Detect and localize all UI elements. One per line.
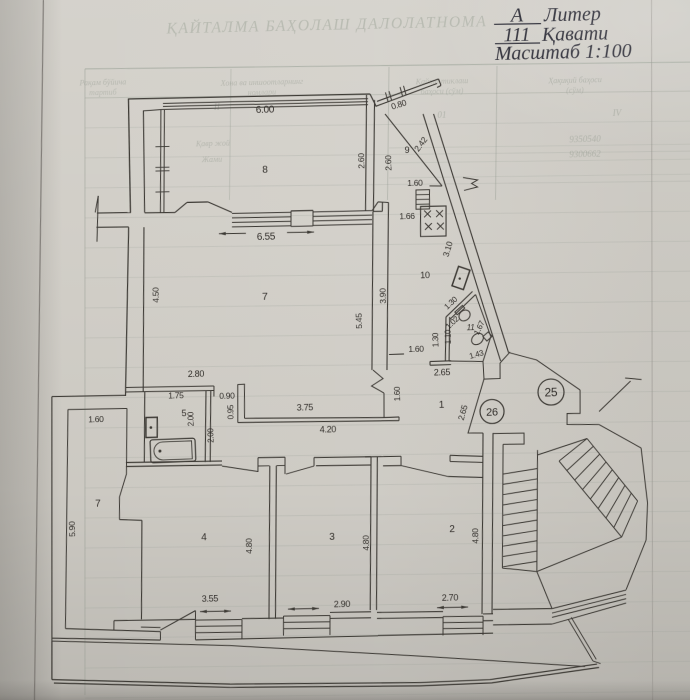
svg-text:тартиб: тартиб bbox=[89, 88, 118, 98]
svg-text:Қавр жой: Қавр жой bbox=[195, 139, 230, 149]
svg-text:2.00: 2.00 bbox=[186, 411, 195, 426]
svg-text:4.80: 4.80 bbox=[244, 538, 254, 554]
svg-text:1.43: 1.43 bbox=[468, 348, 485, 361]
svg-text:25: 25 bbox=[544, 385, 558, 399]
svg-text:3.10: 3.10 bbox=[441, 240, 455, 258]
svg-text:Рақам бўйича: Рақам бўйича bbox=[78, 77, 126, 87]
svg-text:4.20: 4.20 bbox=[320, 424, 337, 434]
svg-text:7: 7 bbox=[262, 291, 268, 303]
svg-text:0.80: 0.80 bbox=[390, 97, 408, 111]
svg-text:2.60: 2.60 bbox=[383, 155, 393, 171]
svg-text:Жами: Жами bbox=[201, 155, 223, 164]
svg-text:6.00: 6.00 bbox=[256, 105, 275, 116]
svg-text:0.95: 0.95 bbox=[226, 404, 235, 419]
svg-text:3.75: 3.75 bbox=[297, 402, 314, 412]
svg-text:2.70: 2.70 bbox=[442, 592, 459, 602]
svg-text:2.00: 2.00 bbox=[206, 427, 215, 442]
svg-text:4.80: 4.80 bbox=[361, 535, 371, 551]
svg-text:0.90: 0.90 bbox=[219, 390, 235, 400]
svg-text:9300662: 9300662 bbox=[569, 149, 601, 160]
svg-text:1.60: 1.60 bbox=[407, 178, 423, 188]
svg-text:9: 9 bbox=[405, 145, 410, 155]
svg-text:8: 8 bbox=[262, 165, 268, 176]
svg-text:2.65: 2.65 bbox=[434, 367, 451, 377]
svg-text:2: 2 bbox=[449, 524, 455, 535]
svg-text:1.60: 1.60 bbox=[393, 386, 402, 401]
svg-text:1.30: 1.30 bbox=[442, 294, 459, 311]
svg-text:3.90: 3.90 bbox=[378, 288, 388, 304]
svg-text:2.90: 2.90 bbox=[334, 599, 351, 609]
svg-text:5.90: 5.90 bbox=[67, 521, 77, 537]
svg-text:2.80: 2.80 bbox=[188, 369, 205, 379]
svg-text:6.55: 6.55 bbox=[257, 232, 276, 243]
svg-text:26: 26 bbox=[486, 406, 498, 418]
svg-text:3.55: 3.55 bbox=[202, 593, 219, 603]
svg-text:2.65: 2.65 bbox=[456, 403, 470, 421]
svg-text:1.30: 1.30 bbox=[431, 332, 440, 347]
svg-text:7: 7 bbox=[95, 498, 101, 509]
svg-text:Хона ва иншоотларнинг: Хона ва иншоотларнинг bbox=[220, 77, 304, 88]
svg-text:1.60: 1.60 bbox=[408, 344, 424, 354]
svg-text:4.50: 4.50 bbox=[151, 287, 161, 303]
svg-text:3: 3 bbox=[329, 532, 335, 543]
svg-text:1.60: 1.60 bbox=[88, 414, 104, 424]
svg-text:1.66: 1.66 bbox=[399, 211, 415, 221]
svg-text:1: 1 bbox=[439, 400, 445, 411]
svg-text:5.45: 5.45 bbox=[354, 313, 364, 329]
svg-text:II: II bbox=[213, 102, 221, 112]
svg-text:4.80: 4.80 bbox=[470, 528, 480, 544]
svg-text:10: 10 bbox=[420, 270, 430, 280]
svg-text:2.42: 2.42 bbox=[412, 135, 430, 154]
svg-text:1.10: 1.10 bbox=[443, 329, 452, 344]
svg-text:1.75: 1.75 bbox=[168, 390, 184, 400]
svg-text:2.60: 2.60 bbox=[356, 153, 366, 169]
svg-text:4: 4 bbox=[201, 532, 207, 543]
